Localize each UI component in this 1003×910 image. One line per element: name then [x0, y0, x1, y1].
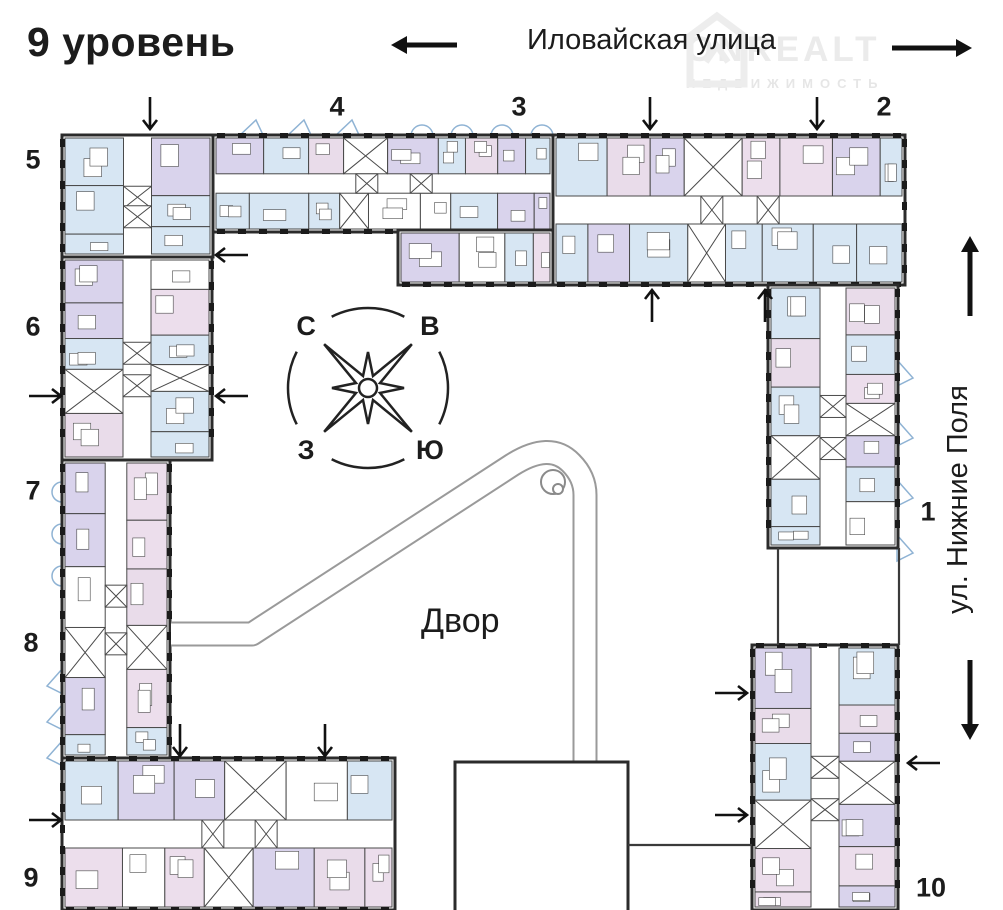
entrance-arrow-left	[216, 248, 248, 262]
entrance-arrow-left	[216, 389, 248, 403]
compass-letter-west: З	[298, 435, 315, 465]
entrance-arrow-right	[715, 686, 747, 700]
entrance-arrow-down	[643, 97, 657, 129]
building-block-west-strip-lower	[60, 460, 172, 758]
street-direction-arrow	[391, 36, 457, 54]
compass-rose: СВЗЮ	[288, 308, 448, 468]
building-block-top-strip-west	[213, 133, 553, 234]
courtyard-walkway	[171, 452, 585, 772]
building-block-west-corner	[60, 135, 213, 257]
floor-plan-canvas: СВЗЮ	[0, 0, 1003, 910]
floor-plan-stage: ONREALT НЕДВИЖИМОСТЬ СВЗЮ 9 уровень Илов…	[0, 0, 1003, 910]
entrance-arrow-down	[143, 97, 157, 129]
compass-letter-south: Ю	[416, 435, 444, 465]
building-block-southeast-tower	[750, 643, 900, 910]
entrance-arrow-right	[29, 813, 61, 827]
building-block-south-strip	[60, 756, 395, 910]
compass-letter-east: В	[420, 311, 440, 341]
entrance-arrow-left	[908, 756, 940, 770]
entrance-arrow-down	[810, 97, 824, 129]
building-block-top-strip-inner	[398, 230, 553, 287]
entrance-arrow-down	[318, 724, 332, 756]
street-direction-arrow	[961, 236, 979, 316]
entrance-arrow-right	[715, 808, 747, 822]
compass-letter-north: С	[296, 311, 316, 341]
entrance-arrow-right	[29, 389, 61, 403]
building-block-top-strip-east	[553, 133, 907, 287]
building-block-west-strip-upper	[60, 257, 214, 460]
entrance-arrow-down	[173, 724, 187, 756]
building-block-east-strip	[766, 285, 900, 548]
entrance-arrow-up	[645, 290, 659, 322]
central-structure	[455, 762, 628, 910]
street-direction-arrow	[892, 39, 972, 57]
street-direction-arrow	[961, 660, 979, 740]
